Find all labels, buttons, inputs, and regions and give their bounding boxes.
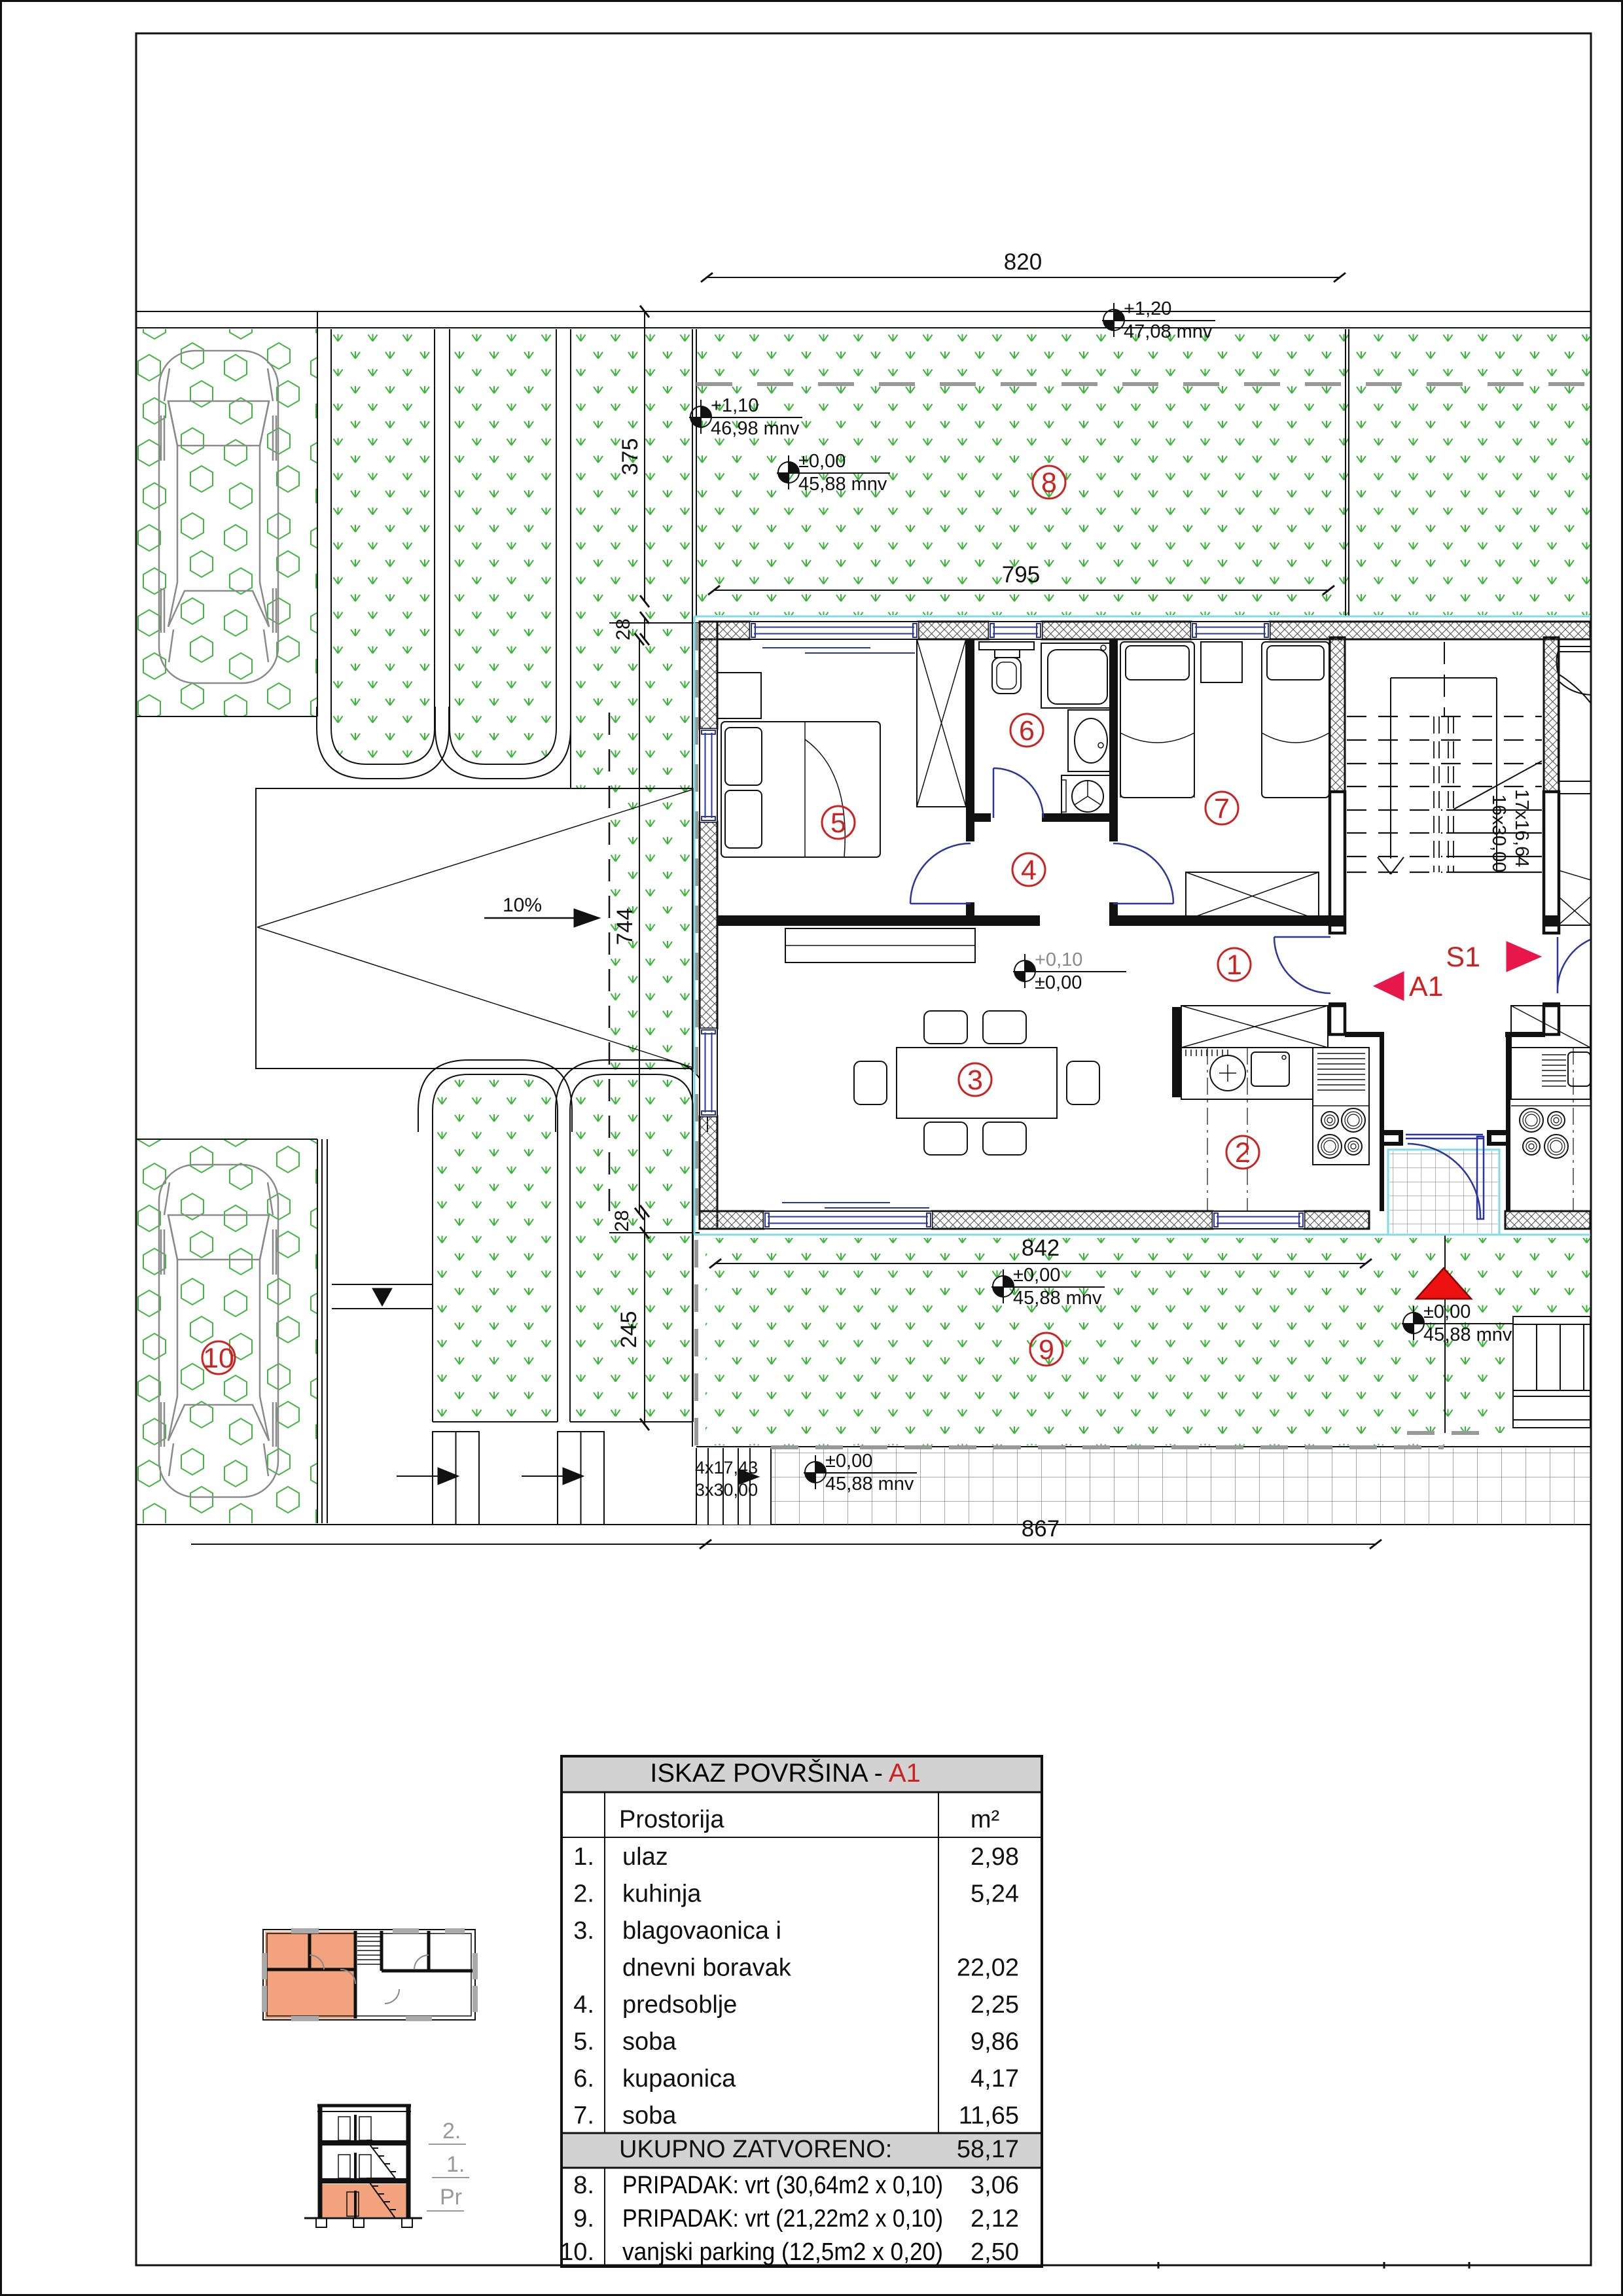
svg-text:S1: S1 [1446,942,1480,973]
svg-text:Pr: Pr [440,2185,462,2210]
svg-text:2,98: 2,98 [971,1843,1019,1871]
svg-text:6.: 6. [573,2065,594,2093]
svg-text:dnevni boravak: dnevni boravak [622,1954,792,1982]
svg-text:46,98 mnv: 46,98 mnv [711,418,800,439]
svg-text:842: 842 [1022,1235,1060,1261]
svg-text:6: 6 [1019,715,1035,747]
svg-text:245: 245 [616,1311,641,1349]
svg-text:3x30,00: 3x30,00 [695,1480,758,1500]
svg-text:+1,20: +1,20 [1124,298,1171,319]
svg-text:soba: soba [622,2102,677,2130]
svg-text:5: 5 [830,807,846,839]
svg-text:4: 4 [1021,855,1037,886]
svg-text:ulaz: ulaz [622,1843,668,1871]
svg-text:375: 375 [618,438,643,476]
svg-text:8: 8 [1041,467,1057,499]
svg-text:2.: 2. [442,2119,461,2144]
svg-text:45,88 mnv: 45,88 mnv [798,474,887,495]
svg-text:9,86: 9,86 [971,2028,1019,2056]
svg-text:28: 28 [613,618,634,640]
svg-text:kuhinja: kuhinja [622,1881,702,1908]
svg-text:±0,00: ±0,00 [1035,972,1082,993]
svg-text:2: 2 [1235,1137,1251,1169]
svg-text:PRIPADAK: vrt (30,64m2 x 0,10: PRIPADAK: vrt (30,64m2 x 0,10) [622,2172,943,2199]
svg-text:4,17: 4,17 [971,2065,1019,2093]
svg-text:10: 10 [203,1343,234,1374]
svg-text:1.: 1. [573,1843,594,1871]
svg-text:3.: 3. [573,1917,594,1945]
svg-text:9.: 9. [573,2205,594,2233]
svg-text:4.: 4. [573,1991,594,2019]
svg-text:±0,00: ±0,00 [1423,1301,1471,1322]
svg-text:5.: 5. [573,2028,594,2056]
svg-text:5,24: 5,24 [971,1881,1019,1908]
svg-text:820: 820 [1004,249,1042,275]
svg-text:22,02: 22,02 [957,1954,1019,1982]
svg-text:1.: 1. [446,2152,465,2177]
svg-text:vanjski parking (12,5m2 x 0,2: vanjski parking (12,5m2 x 0,20) [622,2238,943,2266]
svg-text:10.: 10. [560,2238,594,2266]
svg-text:16x30,00: 16x30,00 [1488,794,1509,872]
svg-text:A1: A1 [1409,971,1444,1002]
svg-text:kupaonica: kupaonica [622,2065,736,2093]
svg-text:m²: m² [971,1806,999,1833]
svg-text:3,06: 3,06 [971,2172,1019,2199]
svg-text:58,17: 58,17 [957,2136,1019,2163]
svg-text:28: 28 [611,1210,633,1231]
svg-text:±0,00: ±0,00 [798,451,846,472]
svg-text:11,65: 11,65 [959,2102,1019,2130]
svg-text:UKUPNO ZATVORENO:: UKUPNO ZATVORENO: [619,2136,892,2163]
svg-text:2,25: 2,25 [971,1991,1019,2019]
svg-text:2.: 2. [573,1881,594,1908]
svg-text:45,88 mnv: 45,88 mnv [825,1474,914,1494]
svg-text:Prostorija: Prostorija [619,1806,724,1833]
svg-text:47,08 mnv: 47,08 mnv [1124,321,1213,342]
svg-text:±0,00: ±0,00 [1013,1265,1060,1286]
svg-text:+1,10: +1,10 [711,395,758,416]
svg-text:10%: 10% [503,894,542,916]
svg-text:ISKAZ POVRŠINA - A1: ISKAZ POVRŠINA - A1 [650,1758,921,1788]
svg-text:7.: 7. [573,2102,594,2130]
svg-text:2,50: 2,50 [971,2238,1019,2266]
svg-text:+0,10: +0,10 [1035,949,1082,970]
svg-text:2,12: 2,12 [971,2205,1019,2233]
svg-text:8.: 8. [573,2172,594,2199]
svg-text:1: 1 [1226,949,1242,981]
svg-text:45,88 mnv: 45,88 mnv [1013,1288,1102,1309]
svg-text:blagovaonica i: blagovaonica i [622,1917,781,1945]
svg-text:17x16,64: 17x16,64 [1511,789,1532,867]
svg-text:867: 867 [1022,1516,1060,1542]
svg-text:795: 795 [1002,562,1040,588]
svg-text:predsoblje: predsoblje [622,1991,737,2019]
svg-text:9: 9 [1039,1334,1054,1366]
svg-text:±0,00: ±0,00 [825,1451,872,1472]
svg-text:7: 7 [1214,793,1230,824]
svg-text:soba: soba [622,2028,677,2056]
svg-text:744: 744 [613,908,637,945]
svg-text:3: 3 [967,1065,983,1096]
svg-text:45,88 mnv: 45,88 mnv [1423,1324,1512,1345]
svg-text:PRIPADAK: vrt (21,22m2 x 0,10: PRIPADAK: vrt (21,22m2 x 0,10) [622,2205,943,2233]
